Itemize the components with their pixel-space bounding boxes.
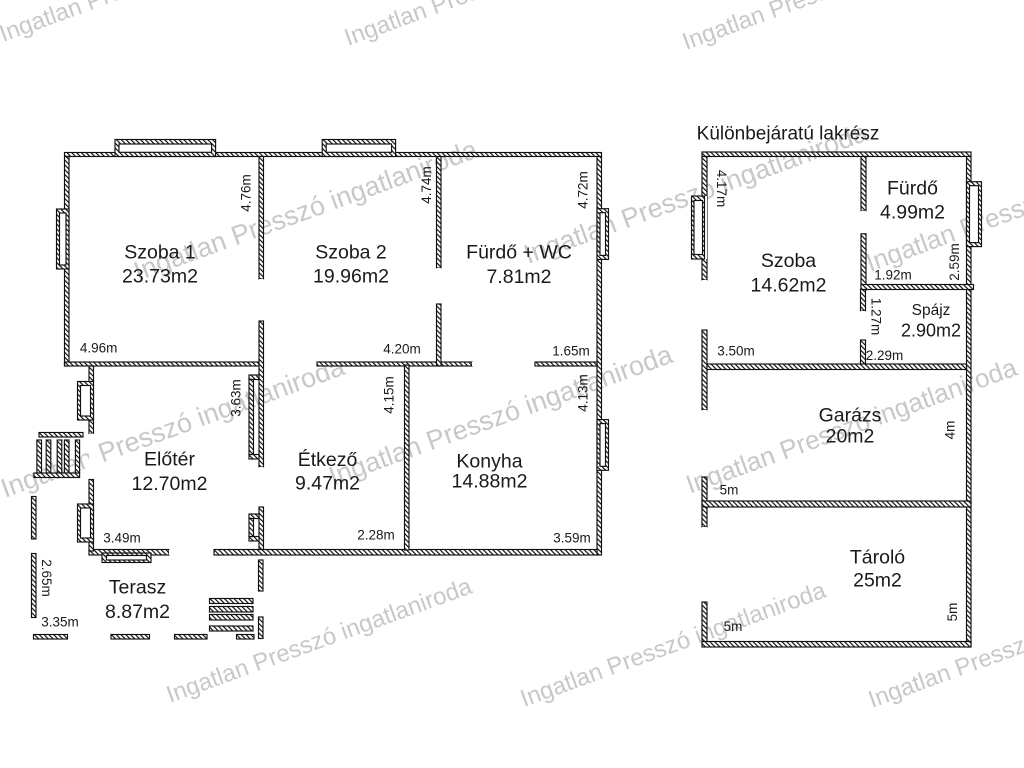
- svg-text:3.35m: 3.35m: [41, 615, 79, 630]
- svg-text:1.27m: 1.27m: [869, 298, 884, 336]
- svg-text:14.62m2: 14.62m2: [751, 275, 827, 297]
- svg-text:4.74m: 4.74m: [419, 166, 434, 204]
- svg-text:4.15m: 4.15m: [382, 376, 397, 414]
- svg-text:4.17m: 4.17m: [714, 170, 729, 208]
- svg-text:5m: 5m: [724, 619, 743, 634]
- svg-text:4.96m: 4.96m: [80, 341, 118, 356]
- svg-text:2.90m2: 2.90m2: [901, 321, 961, 341]
- svg-text:9.47m2: 9.47m2: [295, 473, 360, 495]
- svg-text:Szoba 2: Szoba 2: [315, 242, 387, 264]
- svg-text:25m2: 25m2: [853, 570, 902, 592]
- svg-text:2.28m: 2.28m: [357, 528, 395, 543]
- svg-text:14.88m2: 14.88m2: [452, 471, 528, 493]
- svg-text:1.65m: 1.65m: [552, 344, 590, 359]
- svg-text:Tároló: Tároló: [850, 547, 905, 569]
- svg-text:3.50m: 3.50m: [717, 344, 755, 359]
- svg-text:Szoba 1: Szoba 1: [124, 242, 196, 264]
- svg-text:4.99m2: 4.99m2: [880, 202, 945, 224]
- svg-text:2.65m: 2.65m: [39, 559, 54, 597]
- svg-text:Konyha: Konyha: [456, 451, 522, 473]
- svg-text:Ingatlan Presszó ingatlaniroda: Ingatlan Presszó ingatlaniroda: [163, 573, 476, 709]
- svg-text:3.49m: 3.49m: [103, 531, 141, 546]
- svg-text:4.20m: 4.20m: [383, 342, 421, 357]
- svg-text:19.96m2: 19.96m2: [313, 266, 389, 288]
- svg-text:Ingatlan Presszó ingatlaniroda: Ingatlan Presszó ingatlaniroda: [341, 0, 654, 52]
- svg-text:23.73m2: 23.73m2: [122, 266, 198, 288]
- svg-text:4.13m: 4.13m: [576, 374, 591, 412]
- svg-text:5m: 5m: [720, 483, 739, 498]
- svg-text:2.29m: 2.29m: [866, 348, 904, 363]
- svg-text:8.87m2: 8.87m2: [105, 601, 170, 623]
- svg-text:12.70m2: 12.70m2: [132, 473, 208, 495]
- svg-text:Fürdő + WC: Fürdő + WC: [466, 242, 572, 264]
- svg-text:4.72m: 4.72m: [576, 171, 591, 209]
- svg-text:5m: 5m: [945, 603, 960, 622]
- svg-text:3.59m: 3.59m: [553, 531, 591, 546]
- svg-text:Ingatlan Presszó ingatlaniroda: Ingatlan Presszó ingatlaniroda: [0, 0, 309, 48]
- svg-text:3.63m: 3.63m: [229, 379, 244, 417]
- svg-text:Terasz: Terasz: [109, 577, 166, 599]
- svg-text:Különbejáratú lakrész: Különbejáratú lakrész: [697, 124, 880, 145]
- svg-text:4.76m: 4.76m: [239, 174, 254, 212]
- svg-text:4m: 4m: [943, 421, 958, 440]
- svg-text:Ingatlan Presszó ingatlaniroda: Ingatlan Presszó ingatlaniroda: [679, 0, 992, 56]
- svg-text:Garázs: Garázs: [819, 405, 882, 427]
- svg-text:Spájz: Spájz: [912, 302, 951, 319]
- svg-text:20m2: 20m2: [826, 426, 875, 448]
- svg-text:Étkező: Étkező: [298, 448, 358, 471]
- svg-text:2.59m: 2.59m: [947, 243, 962, 281]
- svg-text:Szoba: Szoba: [761, 250, 816, 272]
- svg-text:7.81m2: 7.81m2: [486, 266, 551, 288]
- svg-text:1.92m: 1.92m: [874, 268, 912, 283]
- svg-text:Fürdő: Fürdő: [887, 178, 938, 200]
- svg-text:Előtér: Előtér: [144, 449, 195, 471]
